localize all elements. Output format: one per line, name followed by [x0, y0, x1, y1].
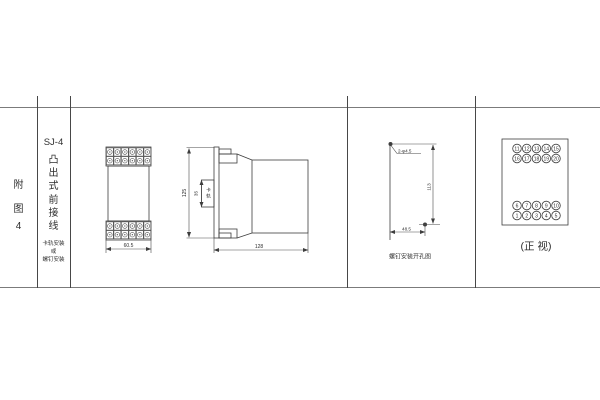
screw-center-dot — [124, 151, 125, 152]
drawings-svg: 60.5 35 卡 轨 125 — [0, 0, 600, 400]
drill-view-caption: 螺钉安装开孔图 — [389, 253, 431, 261]
terminal-number: 16 — [514, 156, 520, 162]
screw-center-dot — [139, 234, 140, 235]
depth-dim-label: 128 — [255, 244, 264, 250]
terminal-circles: 1112131415161718192067891012345 — [513, 144, 561, 220]
screw-center-dot — [109, 160, 110, 161]
rail-slot-label: 卡 — [206, 187, 211, 194]
terminal-number: 14 — [543, 146, 549, 152]
screw-center-dot — [147, 234, 148, 235]
terminal-number: 1 — [516, 213, 519, 219]
width-dim-label: 60.5 — [124, 243, 134, 249]
rail-slot-label: 轨 — [206, 193, 211, 200]
terminal-number: 13 — [534, 146, 540, 152]
screw-center-dot — [132, 151, 133, 152]
terminal-number: 19 — [543, 156, 549, 162]
height-dim-label: 125 — [182, 189, 188, 198]
screw-center-dot — [109, 151, 110, 152]
screw-center-dot — [139, 151, 140, 152]
rail-slot-dim-label: 35 — [194, 191, 199, 197]
terminal-number: 8 — [535, 203, 538, 209]
terminal-screws-bottom — [106, 222, 150, 239]
side-view: 35 卡 轨 125 128 — [182, 147, 308, 253]
terminal-number: 17 — [524, 156, 530, 162]
screw-center-dot — [117, 234, 118, 235]
screw-center-dot — [109, 234, 110, 235]
drill-template-view: 2-φ4.5 113 48.5 螺钉安装开孔图 — [389, 142, 441, 261]
terminal-number: 2 — [525, 213, 528, 219]
terminal-number: 12 — [524, 146, 530, 152]
terminal-number: 5 — [555, 213, 558, 219]
terminal-number: 7 — [525, 203, 528, 209]
screw-center-dot — [124, 225, 125, 226]
screw-center-dot — [132, 160, 133, 161]
screw-center-dot — [147, 151, 148, 152]
screw-center-dot — [139, 160, 140, 161]
screw-center-dot — [117, 151, 118, 152]
screw-center-dot — [132, 234, 133, 235]
terminal-number: 4 — [545, 213, 548, 219]
screw-center-dot — [117, 225, 118, 226]
front-view-caption: (正 视) — [521, 240, 552, 253]
screw-center-dot — [124, 160, 125, 161]
screw-center-dot — [132, 225, 133, 226]
terminal-number: 6 — [516, 203, 519, 209]
screw-center-dot — [147, 225, 148, 226]
front-outline-view: 60.5 — [106, 147, 151, 253]
terminal-number: 15 — [553, 146, 559, 152]
screw-center-dot — [139, 225, 140, 226]
vertical-dim-label: 113 — [427, 183, 432, 191]
terminal-number: 20 — [553, 156, 559, 162]
terminal-front-view: 1112131415161718192067891012345 (正 视) — [502, 139, 568, 253]
figure-sheet: 附 图 4 SJ-4 凸 出 式 前 接 线 卡轨安装 或 螺钉安装 — [0, 0, 600, 400]
screw-center-dot — [147, 160, 148, 161]
holes-callout-label: 2-φ4.5 — [398, 148, 412, 153]
screw-center-dot — [117, 160, 118, 161]
terminal-number: 11 — [514, 146, 519, 152]
terminal-number: 3 — [535, 213, 538, 219]
horizontal-dim-label: 48.5 — [402, 226, 411, 231]
terminal-number: 10 — [553, 203, 559, 209]
mounting-hole — [389, 142, 393, 146]
screw-center-dot — [109, 225, 110, 226]
terminal-number: 18 — [534, 156, 540, 162]
terminal-number: 9 — [545, 203, 548, 209]
screw-center-dot — [124, 234, 125, 235]
terminal-screws-top — [106, 148, 150, 165]
